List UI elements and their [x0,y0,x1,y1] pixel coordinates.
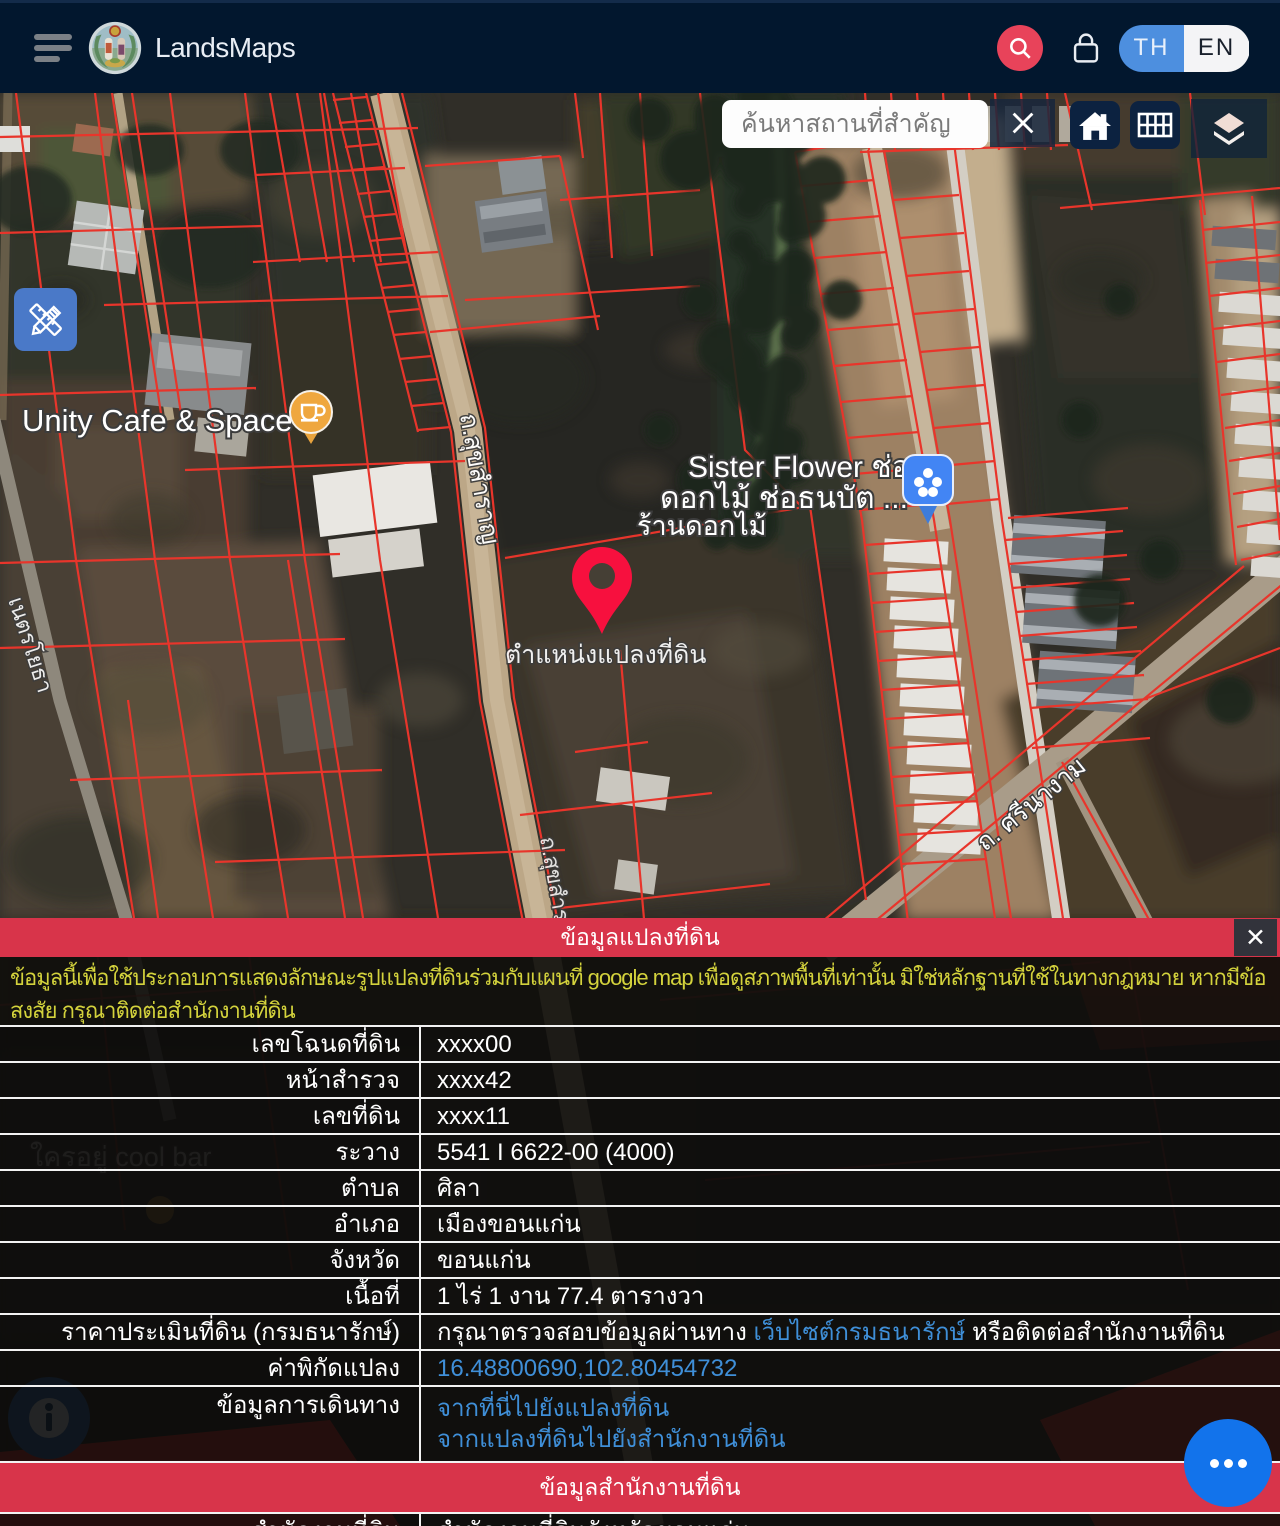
svg-text:ดอกไม้ ช่อธนบัต ...: ดอกไม้ ช่อธนบัต ... [660,480,908,515]
svg-text:ตำแหน่งแปลงที่ดิน: ตำแหน่งแปลงที่ดิน [505,637,706,669]
svg-text:Sister Flower ช่อ: Sister Flower ช่อ [688,451,910,484]
svg-text:ร้านดอกไม้: ร้านดอกไม้ [637,511,767,541]
svg-text:Unity Cafe & Space: Unity Cafe & Space [22,403,293,438]
